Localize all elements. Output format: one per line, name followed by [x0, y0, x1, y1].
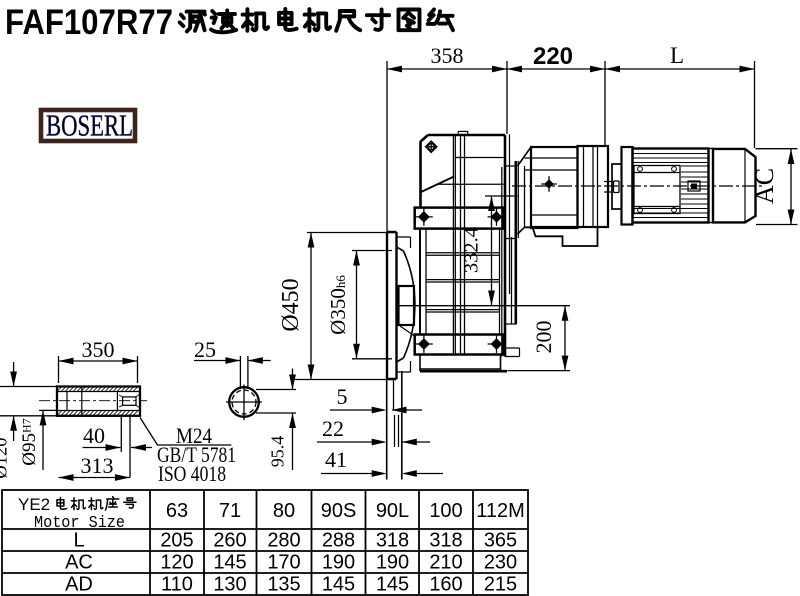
svg-text:160: 160: [429, 574, 462, 596]
svg-text:L: L: [73, 530, 84, 552]
svg-text:YE2: YE2: [18, 495, 50, 514]
svg-text:41: 41: [325, 447, 347, 472]
svg-text:BOSERL: BOSERL: [46, 108, 133, 143]
svg-text:63: 63: [166, 500, 188, 522]
svg-text:190: 190: [376, 552, 409, 574]
svg-text:ISO 4018: ISO 4018: [158, 461, 226, 486]
svg-text:Ø350h6: Ø350h6: [326, 275, 350, 335]
svg-text:5: 5: [337, 384, 348, 409]
svg-text:220: 220: [533, 43, 573, 70]
svg-text:Ø95H7: Ø95H7: [19, 418, 40, 465]
svg-text:Ø120: Ø120: [0, 437, 12, 478]
svg-text:260: 260: [213, 530, 246, 552]
svg-text:210: 210: [429, 552, 462, 574]
svg-text:350: 350: [82, 337, 115, 362]
svg-text:288: 288: [322, 530, 355, 552]
svg-text:170: 170: [267, 552, 300, 574]
svg-text:145: 145: [322, 574, 355, 596]
svg-text:80: 80: [273, 500, 295, 522]
svg-text:215: 215: [484, 574, 517, 596]
svg-text:AD: AD: [65, 574, 93, 596]
svg-text:71: 71: [219, 500, 241, 522]
svg-text:280: 280: [267, 530, 300, 552]
svg-text:22: 22: [322, 416, 344, 441]
svg-text:120: 120: [160, 552, 193, 574]
svg-text:40: 40: [83, 423, 105, 448]
svg-text:AC: AC: [65, 552, 93, 574]
svg-text:110: 110: [161, 574, 193, 596]
svg-text:95.4: 95.4: [268, 436, 288, 468]
svg-text:145: 145: [376, 574, 409, 596]
svg-text:100: 100: [429, 500, 462, 522]
svg-text:365: 365: [484, 530, 517, 552]
svg-text:L: L: [670, 43, 684, 68]
svg-text:90S: 90S: [321, 500, 357, 522]
svg-text:190: 190: [322, 552, 355, 574]
svg-text:313: 313: [81, 453, 114, 478]
svg-text:130: 130: [213, 574, 246, 596]
svg-text:FAF107R77: FAF107R77: [5, 3, 173, 42]
svg-text:205: 205: [160, 530, 193, 552]
svg-text:Ø450: Ø450: [278, 278, 304, 331]
svg-text:90L: 90L: [376, 500, 409, 522]
svg-text:332.4: 332.4: [461, 227, 483, 273]
svg-text:358: 358: [431, 43, 464, 68]
svg-text:145: 145: [213, 552, 246, 574]
svg-text:135: 135: [267, 574, 300, 596]
svg-text:230: 230: [484, 552, 517, 574]
svg-text:25: 25: [194, 337, 216, 362]
svg-text:200: 200: [531, 321, 556, 354]
svg-text:318: 318: [429, 530, 462, 552]
svg-text:112M: 112M: [476, 500, 525, 522]
svg-text:318: 318: [376, 530, 409, 552]
